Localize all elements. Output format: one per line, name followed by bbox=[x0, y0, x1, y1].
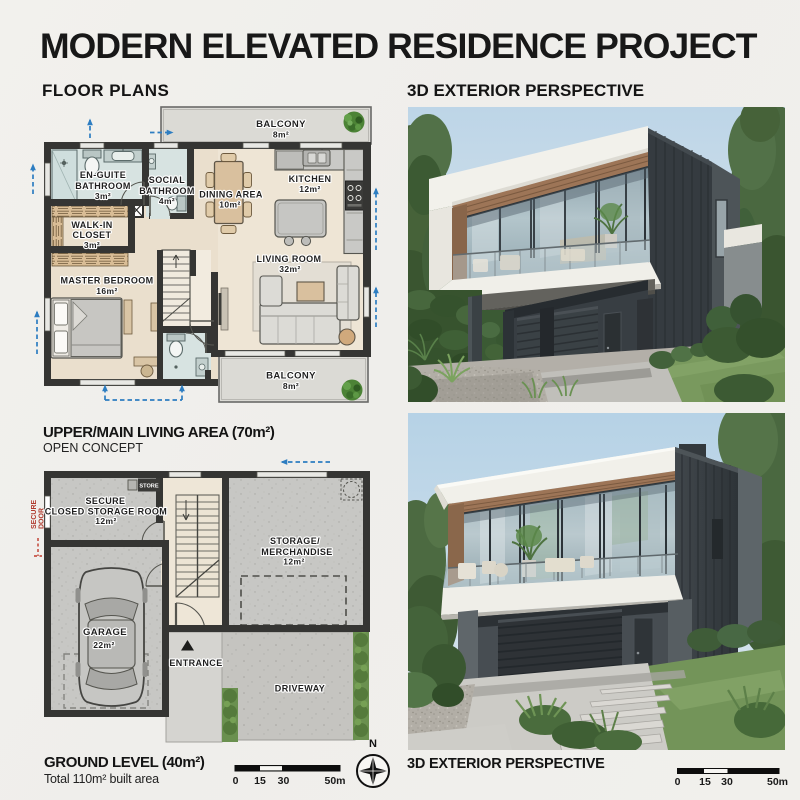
svg-text:LIVING ROOM: LIVING ROOM bbox=[257, 254, 322, 264]
svg-text:50m: 50m bbox=[767, 776, 788, 788]
svg-text:DINING AREA: DINING AREA bbox=[199, 190, 263, 200]
svg-text:15: 15 bbox=[699, 776, 711, 788]
svg-text:MERCHANDISE: MERCHANDISE bbox=[261, 547, 332, 557]
svg-text:BATHROOM: BATHROOM bbox=[75, 181, 131, 191]
svg-text:12m²: 12m² bbox=[299, 184, 320, 194]
svg-text:3m²: 3m² bbox=[95, 191, 111, 201]
svg-text:12m²: 12m² bbox=[95, 516, 116, 526]
svg-text:CLOSET: CLOSET bbox=[73, 230, 112, 240]
svg-text:BALCONY: BALCONY bbox=[256, 119, 306, 130]
svg-text:SECURE: SECURE bbox=[31, 499, 38, 529]
svg-text:16m²: 16m² bbox=[96, 286, 117, 296]
svg-text:DRIVEWAY: DRIVEWAY bbox=[275, 684, 325, 694]
svg-text:0: 0 bbox=[675, 776, 681, 788]
svg-text:4m²: 4m² bbox=[159, 196, 175, 206]
svg-text:N: N bbox=[369, 738, 377, 750]
svg-text:32m²: 32m² bbox=[279, 264, 300, 274]
svg-text:ENTRANCE: ENTRANCE bbox=[169, 658, 222, 668]
svg-text:0: 0 bbox=[233, 775, 239, 787]
svg-text:8m²: 8m² bbox=[273, 130, 289, 140]
svg-text:10m²: 10m² bbox=[219, 200, 240, 210]
svg-text:BALCONY: BALCONY bbox=[266, 371, 316, 382]
svg-text:30: 30 bbox=[721, 776, 733, 788]
svg-text:STORAGE/: STORAGE/ bbox=[270, 536, 320, 546]
svg-text:KITCHEN: KITCHEN bbox=[289, 174, 332, 184]
svg-text:50m: 50m bbox=[324, 775, 345, 787]
svg-text:CLOSED STORAGE ROOM: CLOSED STORAGE ROOM bbox=[45, 507, 167, 517]
svg-text:3m²: 3m² bbox=[84, 240, 100, 250]
svg-text:22m²: 22m² bbox=[93, 640, 114, 650]
svg-text:STORE: STORE bbox=[139, 484, 158, 490]
svg-text:MASTER BEDROOM: MASTER BEDROOM bbox=[60, 276, 153, 286]
svg-text:15: 15 bbox=[254, 775, 266, 787]
svg-text:GARAGE: GARAGE bbox=[83, 627, 127, 638]
svg-text:SOCIAL: SOCIAL bbox=[149, 175, 186, 185]
svg-text:WALK-IN: WALK-IN bbox=[71, 220, 112, 230]
svg-text:12m²: 12m² bbox=[283, 557, 304, 567]
svg-text:SECURE: SECURE bbox=[86, 496, 126, 506]
svg-text:BATHROOM: BATHROOM bbox=[139, 186, 195, 196]
svg-text:30: 30 bbox=[278, 775, 290, 787]
svg-text:EN-GUITE: EN-GUITE bbox=[80, 170, 126, 180]
svg-text:8m²: 8m² bbox=[283, 381, 299, 391]
